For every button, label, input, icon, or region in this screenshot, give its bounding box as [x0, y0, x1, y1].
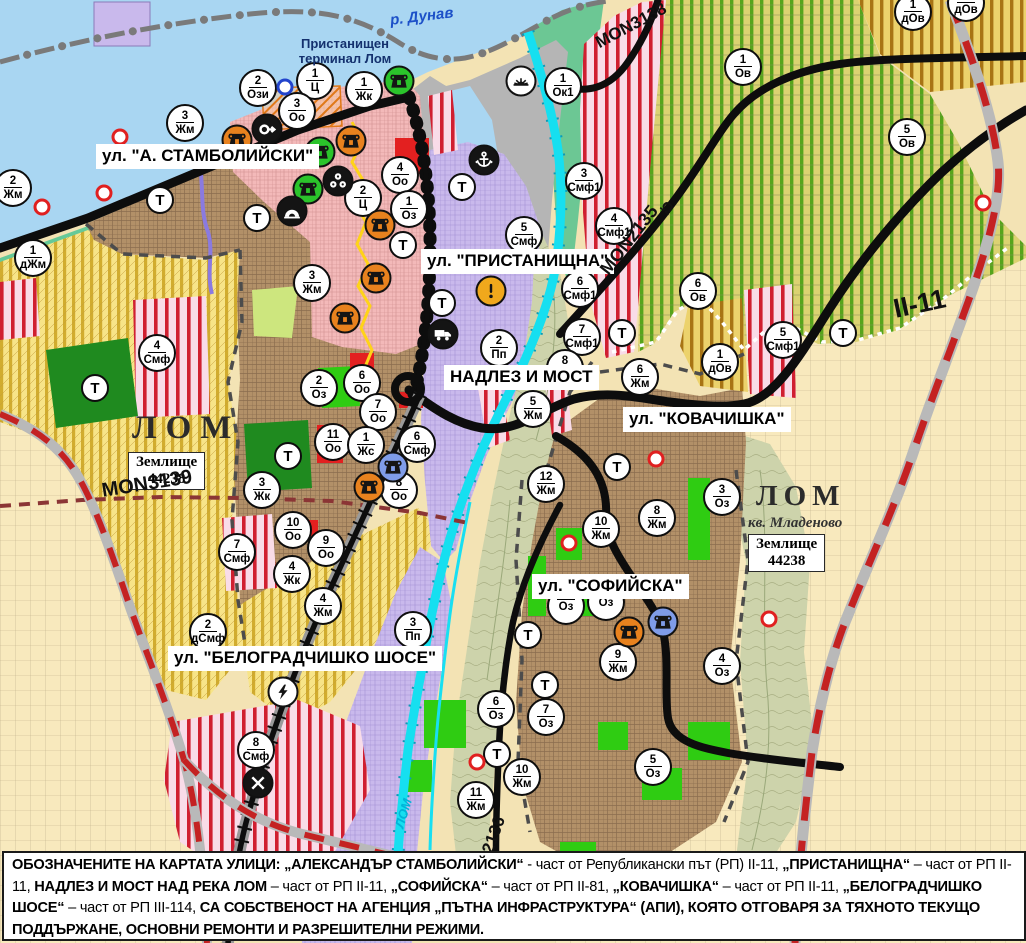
road-number-label: MON3138	[592, 0, 670, 53]
footnote-segment: ОБОЗНАЧЕНИТЕ НА КАРТАТА УЛИЦИ: „АЛЕКСАНД…	[12, 857, 523, 873]
road-labels-layer: MON3139MON3138MON2135ΩII-11MON2136	[0, 0, 1026, 943]
zoning-map: 2Жм3Жм2Ози1Ц3Оо1Жк4Оо2Ц1Оз1Ок13Смф15Смф4…	[0, 0, 1026, 943]
footnote-segment: – част от РП II-11,	[719, 879, 843, 895]
footnote-segment: – част от РП II-11,	[267, 879, 391, 895]
footnote-segment: - част от Републикански път (РП) II-11,	[523, 857, 782, 873]
footnote-segment: „СОФИЙСКА“	[391, 879, 488, 895]
map-footnote: ОБОЗНАЧЕНИТЕ НА КАРТАТА УЛИЦИ: „АЛЕКСАНД…	[2, 851, 1026, 941]
footnote-segment: „ПРИСТАНИЩНА“	[782, 857, 910, 873]
footnote-segment: „КОВАЧИШКА“	[613, 879, 719, 895]
footnote-segment: – част от РП II-81,	[488, 879, 613, 895]
road-number-label: MON3139	[100, 466, 194, 503]
road-number-label: MON2135	[596, 201, 663, 279]
footnote-segment: – част от РП III-114,	[64, 900, 199, 916]
road-number-label: II-11	[891, 283, 949, 324]
footnote-segment: НАДЛЕЗ И МОСТ НАД РЕКА ЛОМ	[34, 879, 267, 895]
